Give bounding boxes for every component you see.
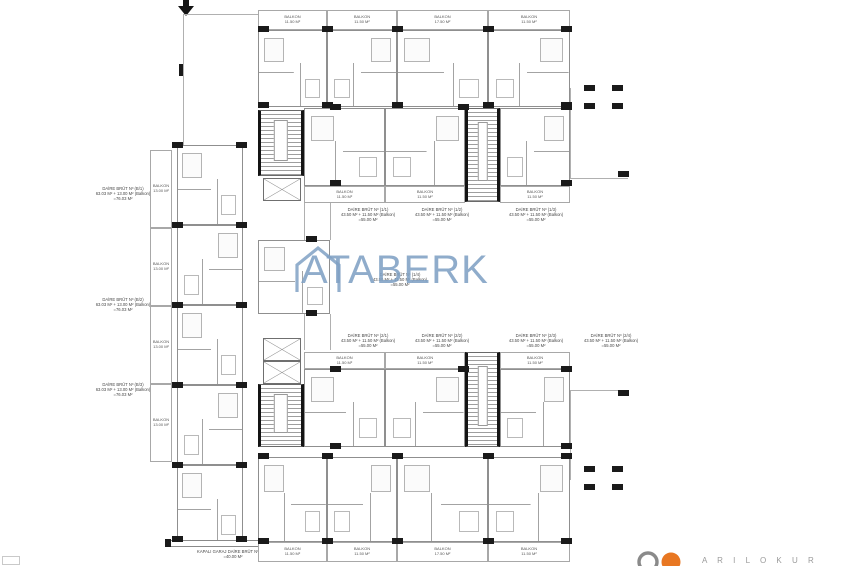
column-marker bbox=[612, 103, 623, 109]
stair-landing bbox=[477, 366, 487, 426]
elevator-shaft bbox=[263, 178, 301, 201]
apartment-unit bbox=[488, 457, 570, 542]
column-marker bbox=[458, 104, 469, 110]
column-marker bbox=[618, 390, 629, 396]
balcony: BALKON 11.50 M² bbox=[385, 186, 465, 203]
column-marker bbox=[392, 538, 403, 544]
elevator-shaft bbox=[263, 338, 301, 361]
wall-line bbox=[330, 203, 331, 240]
balcony: BALKON 11.50 M² bbox=[327, 542, 397, 562]
column-marker bbox=[236, 222, 247, 228]
column-marker bbox=[165, 539, 171, 547]
apartment-area-label: DAİRE BRÜT Nº (1/1) 43.50 M² + 11.50 M² … bbox=[330, 207, 406, 222]
column-marker bbox=[258, 102, 269, 108]
column-marker bbox=[236, 302, 247, 308]
balcony: BALKON 11.50 M² bbox=[500, 352, 570, 369]
apartment-area-label: DAİRE BRÜT Nº (2/2) 43.50 M² + 11.50 M² … bbox=[404, 333, 480, 348]
column-marker bbox=[172, 382, 183, 388]
column-marker bbox=[322, 538, 333, 544]
balcony: BALKON 11.50 M² bbox=[488, 542, 570, 562]
apartment-unit bbox=[385, 369, 465, 447]
column-marker bbox=[584, 85, 595, 91]
wall-line bbox=[304, 203, 305, 240]
column-marker bbox=[483, 26, 494, 32]
column-marker bbox=[561, 104, 572, 110]
apartment-area-label: DAİRE BRÜT Nº (1/3) 43.50 M² + 11.50 M² … bbox=[498, 207, 574, 222]
company-logo: A R I L O K U R bbox=[628, 546, 848, 566]
apartment-unit bbox=[500, 369, 570, 447]
column-marker bbox=[236, 142, 247, 148]
apartment-unit bbox=[258, 30, 327, 107]
column-marker bbox=[561, 538, 572, 544]
column-marker bbox=[561, 443, 572, 449]
column-marker bbox=[236, 382, 247, 388]
balcony: BALKON 11.50 M² bbox=[304, 352, 385, 369]
column-marker bbox=[172, 302, 183, 308]
column-marker bbox=[612, 85, 623, 91]
stair-landing bbox=[274, 394, 288, 433]
apartment-unit bbox=[258, 457, 327, 542]
stair-core bbox=[465, 352, 500, 447]
column-marker bbox=[179, 64, 183, 76]
apartment-area-label: DAİRE BRÜT Nº (1/2) 43.50 M² + 11.50 M² … bbox=[404, 207, 480, 222]
column-marker bbox=[483, 538, 494, 544]
apartment-area-label: DAİRE BRÜT Nº (1/4) 43.50 M² + 11.50 M² … bbox=[360, 272, 440, 287]
column-marker bbox=[330, 366, 341, 372]
column-marker bbox=[612, 466, 623, 472]
column-marker bbox=[306, 310, 317, 316]
site-boundary-line bbox=[183, 14, 258, 15]
column-marker bbox=[584, 484, 595, 490]
apartment-unit bbox=[397, 30, 488, 107]
column-marker bbox=[306, 236, 317, 242]
terrace-boundary bbox=[570, 178, 628, 179]
column-marker bbox=[236, 462, 247, 468]
balcony: BALKON 17.50 M² bbox=[397, 10, 488, 30]
column-marker bbox=[322, 453, 333, 459]
stair-landing bbox=[477, 122, 487, 181]
column-marker bbox=[258, 453, 269, 459]
column-marker bbox=[236, 536, 247, 542]
apartment-area-label: DAİRE BRÜT Nº (2/1) 43.50 M² + 11.50 M² … bbox=[330, 333, 406, 348]
column-marker bbox=[172, 222, 183, 228]
site-boundary-line bbox=[183, 14, 184, 147]
balcony: BALKON 13.00 M² bbox=[150, 306, 172, 384]
terrace-boundary bbox=[570, 390, 571, 480]
column-marker bbox=[483, 102, 494, 108]
apartment-area-label: DAİRE BRÜT Nº (B/2) 63.03 M² + 13.00 M² … bbox=[84, 297, 162, 312]
column-marker bbox=[172, 536, 183, 542]
column-marker bbox=[172, 462, 183, 468]
logo-orange-disc-icon bbox=[662, 553, 681, 566]
column-marker bbox=[458, 366, 469, 372]
column-marker bbox=[258, 26, 269, 32]
stair-core bbox=[258, 384, 304, 447]
balcony: BALKON 17.50 M² bbox=[397, 542, 488, 562]
column-marker bbox=[561, 453, 572, 459]
apartment-unit bbox=[177, 465, 243, 545]
column-marker bbox=[612, 484, 623, 490]
column-marker bbox=[561, 26, 572, 32]
column-marker bbox=[584, 466, 595, 472]
balcony: BALKON 11.50 M² bbox=[327, 10, 397, 30]
corner-mark bbox=[2, 556, 20, 565]
stair-landing bbox=[274, 120, 288, 161]
apartment-unit bbox=[327, 457, 397, 542]
apartment-unit bbox=[488, 30, 570, 107]
elevator-shaft bbox=[263, 361, 301, 384]
apartment-unit bbox=[327, 30, 397, 107]
stair-core bbox=[465, 108, 500, 202]
balcony: BALKON 11.50 M² bbox=[488, 10, 570, 30]
balcony: BALKON 11.50 M² bbox=[304, 186, 385, 203]
wall-line bbox=[304, 314, 305, 350]
column-marker bbox=[618, 171, 629, 177]
apartment-unit bbox=[397, 457, 488, 542]
column-marker bbox=[561, 366, 572, 372]
apartment-area-label: DAİRE BRÜT Nº (B/1) 63.03 M² + 13.00 M² … bbox=[84, 186, 162, 201]
apartment-unit bbox=[258, 240, 330, 314]
apartment-unit bbox=[385, 108, 465, 186]
balcony: BALKON 13.00 M² bbox=[150, 228, 172, 306]
apartment-unit bbox=[177, 305, 243, 385]
logo-letters: A R I L O K U R bbox=[702, 556, 818, 565]
column-marker bbox=[561, 180, 572, 186]
column-marker bbox=[258, 538, 269, 544]
stair-core bbox=[258, 110, 304, 176]
column-marker bbox=[392, 453, 403, 459]
balcony: BALKON 11.50 M² bbox=[385, 352, 465, 369]
column-marker bbox=[172, 142, 183, 148]
column-marker bbox=[392, 102, 403, 108]
apartment-area-label: DAİRE BRÜT Nº (2/4) 43.50 M² + 11.50 M² … bbox=[576, 333, 646, 348]
column-marker bbox=[330, 443, 341, 449]
column-marker bbox=[322, 26, 333, 32]
apartment-unit bbox=[177, 385, 243, 465]
column-marker bbox=[584, 103, 595, 109]
column-marker bbox=[392, 26, 403, 32]
floor-plan-sheet: BALKON 11.50 M² BALKON 11.50 M² BALKON 1… bbox=[0, 0, 850, 566]
column-marker bbox=[330, 180, 341, 186]
column-marker bbox=[330, 104, 341, 110]
balcony: BALKON 11.50 M² bbox=[500, 186, 570, 203]
apartment-unit bbox=[304, 369, 385, 447]
apartment-area-label: DAİRE BRÜT Nº (2/3) 43.50 M² + 11.50 M² … bbox=[498, 333, 574, 348]
apartment-area-label: DAİRE BRÜT Nº (B/3) 63.03 M² + 13.00 M² … bbox=[84, 382, 162, 397]
logo-gray-ring-icon bbox=[639, 553, 657, 566]
balcony: BALKON 11.50 M² bbox=[258, 542, 327, 562]
apartment-unit bbox=[500, 108, 570, 186]
apartment-unit bbox=[177, 225, 243, 305]
column-marker bbox=[483, 453, 494, 459]
apartment-unit bbox=[304, 108, 385, 186]
apartment-unit bbox=[177, 145, 243, 225]
